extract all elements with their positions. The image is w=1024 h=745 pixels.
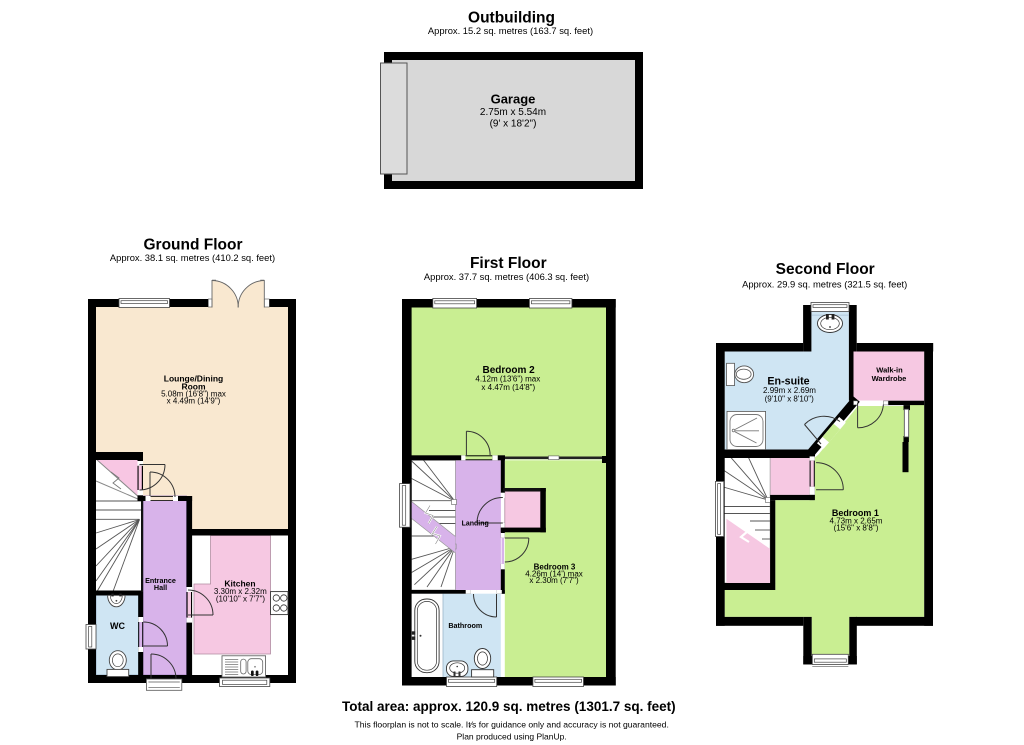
svg-text:Bathroom: Bathroom (448, 621, 482, 630)
svg-text:First Floor: First Floor (470, 255, 547, 272)
svg-text:Approx. 15.2 sq. metres (163.7: Approx. 15.2 sq. metres (163.7 sq. feet) (428, 25, 593, 36)
svg-text:WC: WC (110, 621, 125, 631)
svg-text:Outbuilding: Outbuilding (468, 10, 555, 27)
svg-text:Approx. 29.9 sq. metres (321.5: Approx. 29.9 sq. metres (321.5 sq. feet) (742, 279, 907, 290)
svg-text:Landing: Landing (462, 521, 489, 528)
svg-text:Plan produced using PlanUp.: Plan produced using PlanUp. (457, 732, 567, 742)
svg-text:x 4.47m (14'8"): x 4.47m (14'8") (481, 383, 535, 392)
svg-text:Wardrobe: Wardrobe (872, 374, 907, 383)
svg-text:Approx. 37.7 sq. metres (406.3: Approx. 37.7 sq. metres (406.3 sq. feet) (424, 271, 589, 282)
svg-text:Approx. 38.1 sq. metres (410.2: Approx. 38.1 sq. metres (410.2 sq. feet) (110, 252, 275, 263)
svg-text:x 4.49m (14'9"): x 4.49m (14'9") (167, 397, 221, 406)
svg-text:Ground Floor: Ground Floor (143, 237, 242, 254)
svg-text:(10'10" x 7'7"): (10'10" x 7'7") (216, 595, 266, 604)
svg-text:(15'6" x 8'8"): (15'6" x 8'8") (834, 524, 879, 533)
svg-text:x 2.30m (7'7"): x 2.30m (7'7") (529, 576, 579, 585)
svg-text:2.75m x 5.54m: 2.75m x 5.54m (480, 107, 546, 118)
svg-text:Hall: Hall (154, 583, 167, 592)
svg-text:Total area: approx. 120.9 sq.: Total area: approx. 120.9 sq. metres (13… (342, 699, 676, 714)
svg-text:This floorplan is not to scale: This floorplan is not to scale. It⁄s for… (355, 720, 669, 730)
svg-text:(9' x 18'2"): (9' x 18'2") (490, 119, 537, 130)
svg-text:(9'10" x 8'10"): (9'10" x 8'10") (765, 394, 815, 403)
svg-text:Garage: Garage (491, 92, 536, 107)
svg-text:Second Floor: Second Floor (776, 261, 875, 278)
